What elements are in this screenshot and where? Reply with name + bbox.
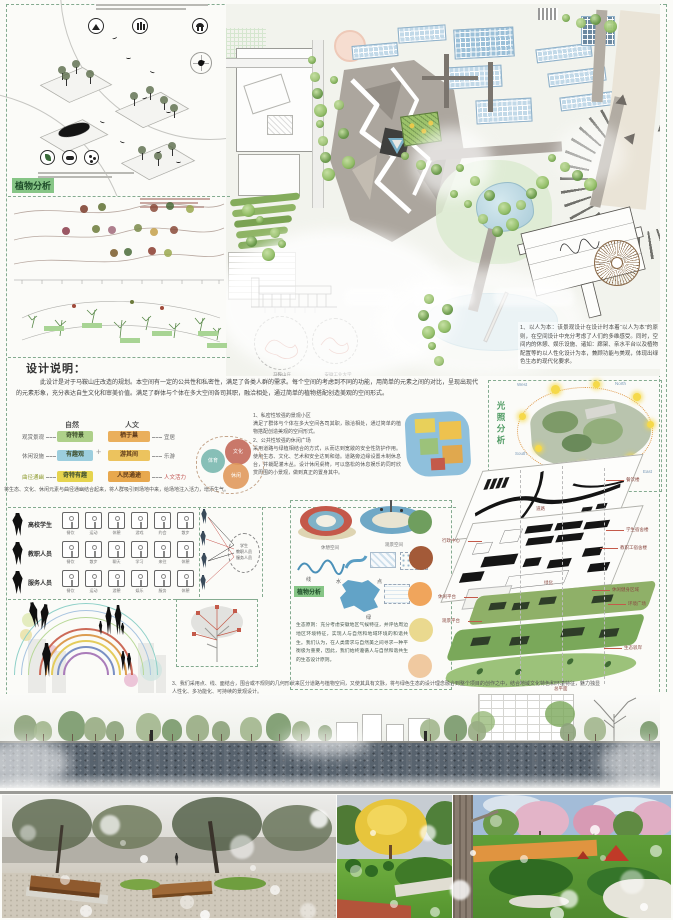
watermark bbox=[344, 284, 579, 310]
axon-label: 行政中心 bbox=[442, 538, 460, 544]
flow-connector bbox=[46, 456, 56, 457]
plan-tree bbox=[256, 216, 264, 224]
crosswalk bbox=[538, 8, 558, 20]
flower-icon bbox=[84, 150, 99, 165]
space-caption-1: 休憩空间 bbox=[306, 545, 354, 551]
activity-icon bbox=[154, 512, 171, 529]
section-tree-trunk bbox=[568, 734, 569, 741]
flow-connector bbox=[152, 437, 162, 438]
activity-icon bbox=[177, 541, 194, 558]
element-line-label: 线 bbox=[306, 576, 311, 583]
plan-tree bbox=[424, 294, 434, 304]
axon-leader bbox=[604, 648, 622, 649]
axon-label: 观景平台 bbox=[442, 618, 460, 624]
activity-icon bbox=[85, 570, 102, 587]
flow-plus: + bbox=[96, 447, 101, 457]
activity-icon bbox=[108, 570, 125, 587]
activity-label: 娱乐 bbox=[129, 588, 150, 594]
activity-icon bbox=[62, 512, 79, 529]
plan-tree bbox=[314, 104, 327, 117]
axon-label: 环境广场 bbox=[628, 601, 646, 607]
plant-name-chip bbox=[198, 331, 218, 336]
flow-connector bbox=[46, 437, 56, 438]
plant-dot bbox=[150, 204, 158, 212]
activity-glyph bbox=[71, 522, 73, 528]
glass-building bbox=[475, 98, 532, 125]
section-tree-trunk bbox=[279, 734, 280, 741]
activity-glyph bbox=[140, 551, 142, 557]
axon-label: 学生宿舍楼 bbox=[626, 527, 649, 533]
flow-left-label: 曲径通幽 bbox=[2, 473, 44, 481]
activity-glyph bbox=[117, 580, 119, 586]
activity-label: 运动 bbox=[83, 530, 104, 536]
design-poster: 植物分析 bbox=[0, 0, 673, 920]
plan-tree bbox=[604, 20, 617, 33]
section-tree-trunk bbox=[221, 734, 222, 741]
plan-tree bbox=[318, 136, 328, 146]
section-tree-trunk bbox=[72, 734, 73, 741]
section-tree-trunk bbox=[172, 734, 173, 741]
plan-tree bbox=[536, 176, 549, 189]
flow-connector bbox=[152, 477, 162, 478]
user-network-diagram: 学生 教职人员 服务人员 bbox=[198, 505, 262, 599]
activity-glyph bbox=[92, 574, 97, 579]
activity-glyph bbox=[71, 580, 73, 586]
master-plan: 马鞍山庄 安徽工业大学 bbox=[226, 4, 660, 376]
design-notes-paragraph: 此设计是对于马鞍山庄改造的规划。本空间有一定的公共性和私密性，满足了各类人群的需… bbox=[16, 378, 478, 399]
activity-glyph bbox=[140, 580, 142, 586]
activity-icon bbox=[131, 512, 148, 529]
section-tree-trunk bbox=[430, 734, 431, 741]
fog bbox=[280, 730, 370, 756]
plan-tree bbox=[310, 72, 320, 82]
section-tree-trunk bbox=[456, 734, 457, 741]
activity-glyph bbox=[163, 580, 165, 586]
plant-dot bbox=[186, 205, 194, 213]
eco-principle-text: 生态原则：充分考虑安徽地区气候特征，并评估周边地区环境特征，实现人与自然和地域环… bbox=[296, 622, 408, 666]
axon-connector bbox=[520, 470, 521, 684]
activity-glyph bbox=[161, 545, 166, 550]
axon-label: 休闲健身区域 bbox=[612, 587, 639, 593]
glass-building bbox=[453, 26, 514, 59]
bird-mark bbox=[120, 139, 126, 144]
sun-dot bbox=[519, 413, 526, 420]
plant-name-chip bbox=[207, 343, 227, 348]
photo-divider bbox=[0, 791, 673, 794]
activity-icon bbox=[85, 541, 102, 558]
activity-glyph bbox=[92, 516, 97, 521]
vision-collage bbox=[8, 599, 172, 694]
material-circle-green bbox=[408, 510, 432, 534]
section-tree-trunk bbox=[95, 734, 96, 741]
activity-icon bbox=[108, 512, 125, 529]
group-silhouette bbox=[10, 513, 25, 536]
plant-dot bbox=[170, 226, 178, 234]
axon-leader bbox=[606, 480, 624, 481]
foreground-trunk bbox=[453, 795, 473, 918]
plan-tree bbox=[330, 76, 338, 84]
activity-glyph bbox=[184, 545, 189, 550]
sketch-tree-trunk bbox=[134, 99, 135, 106]
activity-label: 休憩 bbox=[175, 559, 196, 565]
site-analysis-panel: 植物分析 bbox=[0, 0, 230, 196]
group-name: 高校学生 bbox=[28, 520, 60, 529]
flow-header-human: 人文 bbox=[112, 420, 152, 430]
bird-mark bbox=[112, 35, 118, 40]
dir-east: East bbox=[643, 469, 652, 474]
plant-dot bbox=[150, 228, 158, 236]
activity-glyph bbox=[71, 551, 73, 557]
render-photo-benches bbox=[2, 795, 336, 918]
axon-label: 休闲平台 bbox=[438, 594, 456, 600]
flow-left-label: 休闲设施 bbox=[2, 452, 44, 460]
flow-left-label: 观赏景观 bbox=[2, 433, 44, 441]
activity-glyph bbox=[117, 551, 119, 557]
activity-glyph bbox=[138, 574, 143, 579]
activity-icon bbox=[108, 541, 125, 558]
glass-building bbox=[351, 42, 398, 60]
activity-glyph bbox=[69, 545, 74, 550]
sketch-tree-trunk bbox=[158, 159, 159, 166]
section-divider bbox=[8, 357, 230, 358]
space-model-1 bbox=[300, 506, 352, 536]
leaf-icon bbox=[40, 150, 55, 165]
glass-building bbox=[398, 24, 447, 43]
compass-icon bbox=[190, 52, 212, 74]
activity-icon bbox=[62, 570, 79, 587]
activity-glyph bbox=[140, 522, 142, 528]
axon-leader bbox=[468, 541, 482, 542]
activity-label: 散步 bbox=[83, 559, 104, 565]
sun-dot bbox=[551, 385, 560, 394]
activity-glyph bbox=[115, 516, 120, 521]
plan-tree bbox=[548, 154, 556, 162]
activity-icon bbox=[154, 541, 171, 558]
activity-glyph bbox=[115, 574, 120, 579]
plant-dot bbox=[92, 225, 100, 233]
plan-tree bbox=[506, 218, 519, 231]
activity-glyph bbox=[94, 580, 96, 586]
activity-glyph bbox=[163, 522, 165, 528]
section-tree-trunk bbox=[477, 734, 478, 741]
flow-nature-box: 有趣观 bbox=[57, 450, 93, 461]
activity-label: 餐饮 bbox=[60, 559, 81, 565]
axon-label: 道路 bbox=[536, 506, 545, 512]
element-green-label: 绿 bbox=[366, 614, 371, 621]
plant-dot bbox=[110, 249, 118, 257]
line-element-sketch bbox=[294, 554, 346, 576]
sun-dot bbox=[593, 381, 600, 388]
sun-dot bbox=[633, 393, 641, 401]
activity-label: 游憩 bbox=[106, 588, 127, 594]
plant-name-chip bbox=[152, 331, 172, 336]
plan-tree bbox=[576, 18, 586, 28]
axon-leader bbox=[464, 597, 478, 598]
plan-tree bbox=[316, 120, 324, 128]
plant-analysis-panel bbox=[0, 196, 235, 358]
existing-building-outline bbox=[238, 154, 300, 196]
axon-label: 生态驳岸 bbox=[624, 645, 642, 651]
texture-swatch bbox=[370, 552, 396, 568]
plant-dots-layer bbox=[0, 196, 235, 288]
dir-north: North bbox=[615, 381, 626, 386]
axon-connector bbox=[604, 468, 605, 684]
micro-caption bbox=[38, 172, 134, 174]
dir-south: South bbox=[515, 451, 527, 456]
flow-nature-box: 奇特有趣 bbox=[57, 471, 93, 482]
concept-tree-sketch bbox=[176, 599, 258, 667]
plant-dot bbox=[148, 247, 156, 255]
plant-chips-layer bbox=[0, 288, 235, 354]
venn-culture: 文化 bbox=[225, 439, 251, 465]
activity-label: 游戏 bbox=[129, 530, 150, 536]
group-name: 教职人员 bbox=[28, 549, 60, 558]
render-photo-strip bbox=[0, 795, 673, 918]
plan-tree bbox=[334, 100, 344, 110]
bird-mark bbox=[142, 95, 148, 100]
activity-glyph bbox=[92, 545, 97, 550]
section-person bbox=[150, 730, 153, 741]
activity-glyph bbox=[94, 551, 96, 557]
sketch-tree-trunk bbox=[150, 93, 151, 100]
venn-sport: 体育 bbox=[201, 449, 225, 473]
activity-label: 餐饮 bbox=[60, 530, 81, 536]
water-element-sketch bbox=[342, 552, 368, 572]
bird-mark bbox=[166, 110, 171, 113]
car-icon bbox=[62, 150, 77, 165]
principle-1-text: 1、以人为本：该景观设计在设计时本着“以人为本”的原则，在空间设计中充分考虑了人… bbox=[518, 322, 660, 369]
plant-dot bbox=[80, 205, 88, 213]
venn-diagram: 体育 文化 休闲 bbox=[196, 436, 264, 494]
activity-glyph bbox=[69, 516, 74, 521]
network-bubble: 学生 教职人员 服务人员 bbox=[228, 533, 260, 573]
section-divider bbox=[262, 507, 263, 597]
render-photo-blossoms bbox=[453, 795, 671, 918]
sketch-tree-trunk bbox=[164, 103, 165, 110]
plan-tree bbox=[262, 248, 275, 261]
plant-analysis-label-2: 植物分析 bbox=[294, 586, 324, 597]
fog bbox=[556, 124, 626, 184]
activity-label: 服务 bbox=[152, 588, 173, 594]
activity-label: 散步 bbox=[175, 530, 196, 536]
concept-plan-thumbnail bbox=[400, 404, 478, 486]
plan-tree bbox=[450, 190, 458, 198]
activity-glyph bbox=[184, 516, 189, 521]
activity-icon bbox=[131, 541, 148, 558]
grid-swatch bbox=[384, 584, 410, 604]
plan-tree bbox=[584, 178, 597, 191]
plant-dot bbox=[166, 202, 174, 210]
section-tree-trunk bbox=[198, 734, 199, 741]
sketch-tree-trunk bbox=[174, 111, 175, 118]
activity-glyph bbox=[161, 574, 166, 579]
plant-name-chip bbox=[82, 323, 102, 328]
sketch-tree-trunk bbox=[76, 67, 77, 74]
plan-tree bbox=[516, 200, 526, 210]
plant-name-chip bbox=[120, 338, 140, 343]
plan-tree bbox=[470, 176, 480, 186]
water-fade bbox=[0, 774, 660, 790]
element-water-label: 水 bbox=[336, 578, 341, 585]
section-person bbox=[424, 731, 427, 741]
plant-analysis-label: 植物分析 bbox=[12, 178, 54, 193]
activity-icon bbox=[177, 512, 194, 529]
space-caption-2: 观景空间 bbox=[368, 542, 420, 548]
plant-dot bbox=[98, 203, 106, 211]
frame-right-dash-outer bbox=[666, 4, 667, 692]
sun-dot bbox=[647, 421, 654, 428]
group-name: 服务人员 bbox=[28, 578, 60, 587]
rainbow-arc-ring bbox=[63, 652, 109, 675]
activity-label: 餐饮 bbox=[60, 588, 81, 594]
plan-tree bbox=[401, 152, 409, 160]
plan-tree bbox=[498, 202, 511, 215]
corridor bbox=[488, 62, 493, 112]
sketch-tree-trunk bbox=[90, 77, 91, 84]
axon-label: 绿化 bbox=[544, 580, 553, 586]
element-dot-label: 点 bbox=[377, 578, 382, 585]
plan-tree bbox=[562, 14, 570, 22]
plant-name-chip bbox=[44, 326, 64, 331]
section-tree-trunk bbox=[115, 734, 116, 741]
activity-glyph bbox=[138, 516, 143, 521]
activity-icon bbox=[177, 570, 194, 587]
plan-tree bbox=[278, 240, 286, 248]
plan-tree bbox=[456, 164, 464, 172]
axon-connector bbox=[562, 466, 563, 686]
bird-mark bbox=[150, 69, 156, 74]
sketch-tree-trunk bbox=[142, 153, 143, 160]
activity-glyph bbox=[69, 574, 74, 579]
white-path bbox=[603, 879, 671, 918]
plant-dot bbox=[164, 249, 172, 257]
group-silhouette bbox=[10, 571, 25, 594]
sketch-tree-trunk bbox=[66, 79, 67, 86]
flow-human-box: 游其间 bbox=[108, 450, 150, 461]
plan-tree bbox=[464, 200, 472, 208]
plan-tree bbox=[308, 56, 316, 64]
flow-header-nature: 自然 bbox=[52, 420, 92, 430]
plan-tree bbox=[270, 228, 280, 238]
bird-mark bbox=[126, 56, 131, 59]
activity-label: 学习 bbox=[129, 559, 150, 565]
flow-human-box: 栖于巢 bbox=[108, 431, 150, 442]
group-silhouette bbox=[10, 542, 25, 565]
mandala-plaza bbox=[594, 240, 640, 286]
bird-mark bbox=[176, 160, 181, 163]
activity-glyph bbox=[115, 545, 120, 550]
plan-tree bbox=[322, 168, 335, 181]
activity-icon bbox=[154, 570, 171, 587]
bird-mark bbox=[100, 119, 106, 124]
activity-glyph bbox=[117, 522, 119, 528]
activity-glyph bbox=[138, 545, 143, 550]
render-photo-lawn bbox=[337, 795, 452, 918]
activity-icon bbox=[131, 570, 148, 587]
activity-glyph bbox=[161, 516, 166, 521]
axon-leader bbox=[606, 530, 624, 531]
activity-glyph bbox=[163, 551, 165, 557]
plan-tree bbox=[416, 160, 426, 170]
axon-leader bbox=[600, 548, 618, 549]
activity-icon bbox=[62, 541, 79, 558]
flow-connector bbox=[152, 456, 162, 457]
plan-tree bbox=[478, 214, 488, 224]
activity-label: 约会 bbox=[152, 530, 173, 536]
activity-label: 休憩 bbox=[175, 588, 196, 594]
corridor bbox=[422, 76, 478, 80]
activity-glyph bbox=[94, 522, 96, 528]
activity-label: 休憩 bbox=[106, 530, 127, 536]
activity-glyph bbox=[186, 580, 188, 586]
material-circle-orange bbox=[408, 582, 432, 606]
plant-dot bbox=[134, 224, 142, 232]
sketch-tree-trunk bbox=[172, 149, 173, 156]
plan-tree bbox=[438, 320, 451, 333]
section-tree-trunk bbox=[251, 734, 252, 741]
material-circle-peach bbox=[408, 654, 432, 678]
activity-label: 运动 bbox=[83, 588, 104, 594]
flow-right-label: 宜居 bbox=[164, 433, 208, 441]
axon-leader bbox=[592, 590, 610, 591]
riverbank-section bbox=[0, 694, 660, 790]
activity-glyph bbox=[184, 574, 189, 579]
plant-dot bbox=[108, 226, 116, 234]
plan-tree bbox=[242, 204, 255, 217]
flow-nature-box: 奇特景 bbox=[57, 431, 93, 442]
activity-glyph bbox=[186, 551, 188, 557]
flow-human-box: 人民通途 bbox=[108, 471, 150, 482]
axon-leader bbox=[608, 604, 626, 605]
axon-leader bbox=[468, 621, 482, 622]
sketch-trees-layer bbox=[0, 0, 230, 196]
plan-tree bbox=[342, 156, 355, 169]
plan-tree bbox=[434, 356, 444, 366]
material-circle-rust bbox=[409, 546, 433, 570]
plan-tree bbox=[422, 326, 435, 339]
flow-connector bbox=[46, 477, 56, 478]
rainbow-arc bbox=[63, 652, 109, 675]
plant-dot bbox=[62, 227, 70, 235]
activity-icon bbox=[85, 512, 102, 529]
activity-label: 聊天 bbox=[106, 559, 127, 565]
plant-dot bbox=[124, 248, 132, 256]
design-notes-items: 1、私密性较强的景观小区 满足了群体与个体在多大空间各司其职，融洽相处，通过简单… bbox=[253, 412, 401, 478]
corridor bbox=[444, 54, 449, 108]
design-notes-title: 设计说明： bbox=[26, 360, 86, 376]
axon-label: 餐饮楼 bbox=[626, 477, 640, 483]
axon-label: 教职工宿舍楼 bbox=[620, 545, 647, 551]
blossom-tree bbox=[573, 805, 617, 839]
activity-glyph bbox=[186, 522, 188, 528]
sun-dot bbox=[535, 445, 542, 452]
activity-label: 来往 bbox=[152, 559, 173, 565]
white-path bbox=[509, 895, 569, 908]
plan-tree bbox=[428, 342, 436, 350]
material-circle-yellow bbox=[409, 618, 433, 642]
plan-tree bbox=[560, 162, 570, 172]
section-tree-trunk bbox=[595, 734, 596, 741]
dir-west: West bbox=[517, 382, 527, 387]
venn-leisure: 休闲 bbox=[223, 463, 249, 489]
